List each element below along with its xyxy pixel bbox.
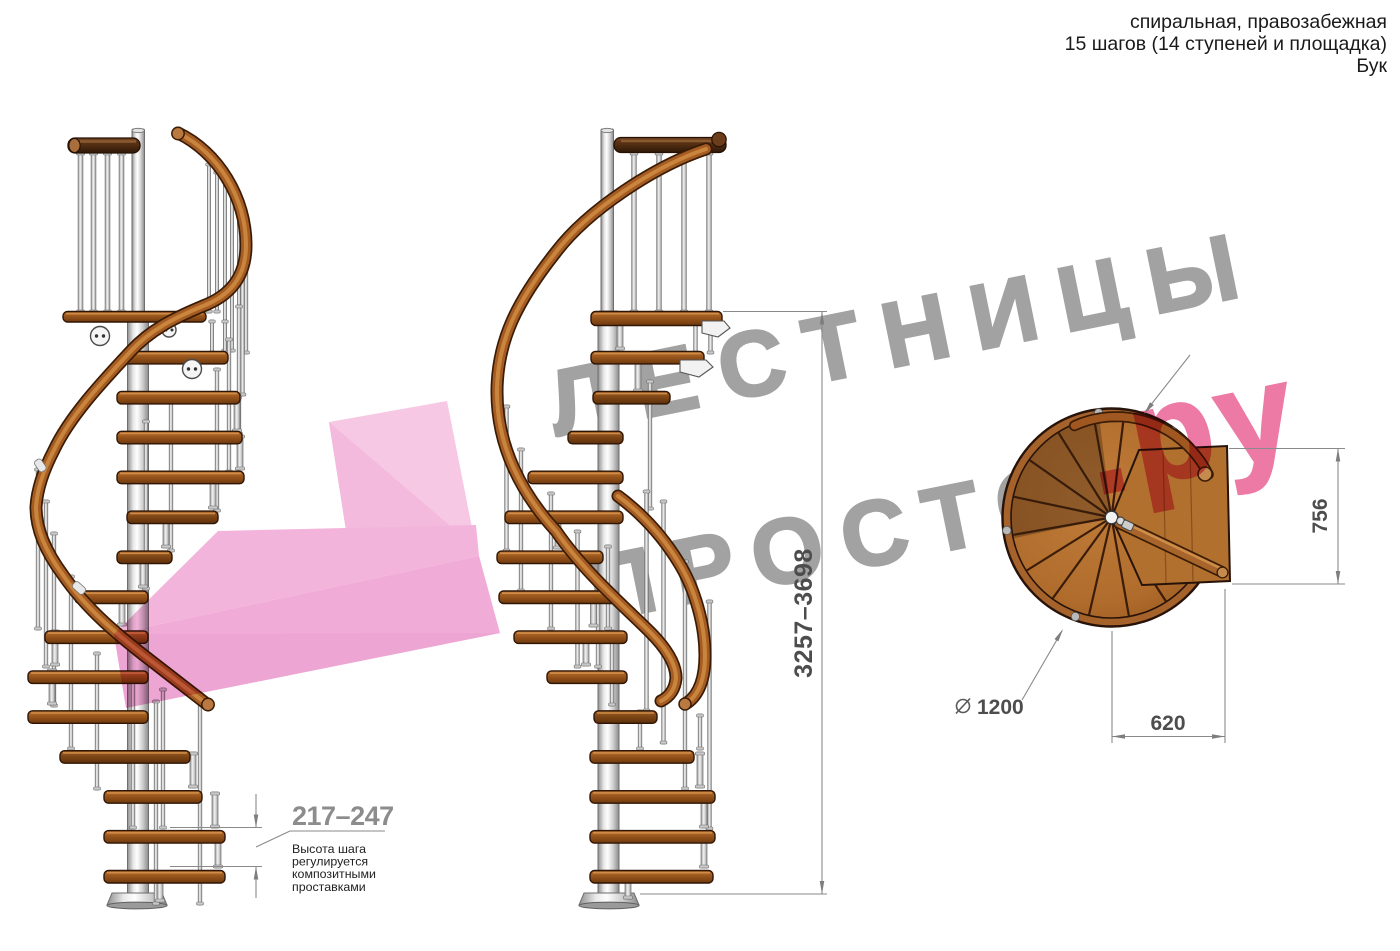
svg-text:756: 756 bbox=[1309, 498, 1332, 533]
svg-text:спиральная, правозабежная: спиральная, правозабежная bbox=[1130, 11, 1387, 33]
svg-text:Бук: Бук bbox=[1356, 55, 1387, 77]
svg-text:Высота шагарегулируетсякомпози: Высота шагарегулируетсякомпозитнымипрост… bbox=[292, 842, 376, 894]
svg-text:217–247: 217–247 bbox=[292, 801, 394, 831]
svg-text:620: 620 bbox=[1150, 712, 1185, 735]
svg-text:1200: 1200 bbox=[977, 696, 1024, 719]
svg-text:15 шагов (14 ступеней и площад: 15 шагов (14 ступеней и площадка) bbox=[1065, 33, 1387, 55]
svg-text:3257–3698: 3257–3698 bbox=[790, 548, 818, 678]
